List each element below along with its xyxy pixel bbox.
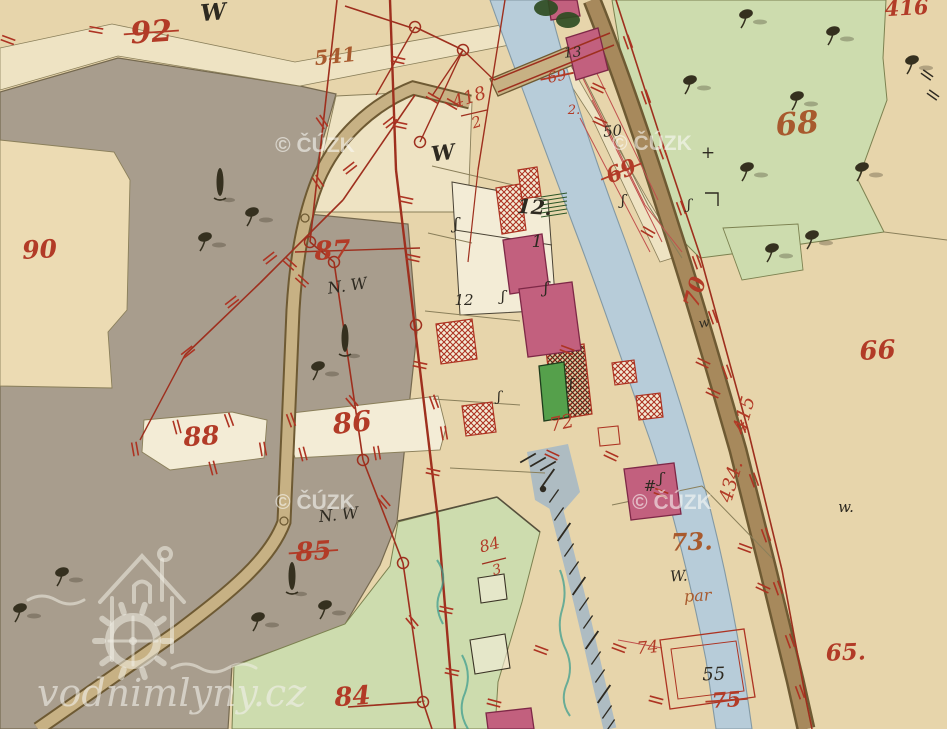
map-canvas: 92W905414182W87N. W12.112692.13695070684… (0, 0, 947, 729)
tree-cluster-dark (556, 12, 580, 28)
map-label-55: 55 (702, 664, 726, 686)
map-label-416: 416 (884, 0, 929, 21)
map-label-w: w. (838, 498, 854, 516)
map-label-12: 12. (516, 194, 552, 220)
shed-building (470, 634, 510, 674)
map-label-74: 74 (636, 637, 659, 659)
cuzk-watermark: © ČÚZK (275, 133, 355, 157)
vodnimlyny-watermark-text: vodnimlyny.cz (37, 671, 307, 715)
wooden-building (636, 393, 663, 420)
map-label-: + (701, 143, 715, 163)
map-label-68: 68 (774, 104, 820, 144)
map-label-W: W (199, 0, 229, 27)
map-label-73: 73. (670, 526, 713, 556)
map-label-2: 2. (567, 103, 580, 118)
tree-cluster-dark (534, 0, 558, 16)
map-label-541: 541 (313, 42, 357, 70)
map-label-66: 66 (859, 335, 897, 367)
cuzk-watermark: © ČÚZK (612, 131, 692, 155)
map-label-13: 13 (563, 44, 582, 61)
map-label-87: 87 (313, 235, 352, 267)
map-label-84: 84 (332, 681, 371, 714)
masonry-building-large (519, 282, 581, 357)
map-label-86: 86 (330, 404, 373, 441)
map-label-65: 65. (825, 638, 866, 666)
map-label-W: W. (669, 567, 687, 586)
map-label-12: 12 (454, 291, 473, 309)
historical-cadastral-map: 92W905414182W87N. W12.112692.13695070684… (0, 0, 947, 729)
map-label-1: 1 (532, 232, 543, 252)
wooden-building (436, 319, 477, 364)
shed-building (478, 574, 507, 603)
map-label-90: 90 (21, 234, 58, 265)
wooden-building (462, 402, 496, 436)
wooden-building (612, 360, 637, 385)
map-label-88: 88 (181, 421, 220, 454)
map-label-par: par (684, 585, 714, 605)
cuzk-watermark: © ČÚZK (275, 490, 355, 514)
cuzk-watermark: © ČÚZK (632, 490, 712, 514)
